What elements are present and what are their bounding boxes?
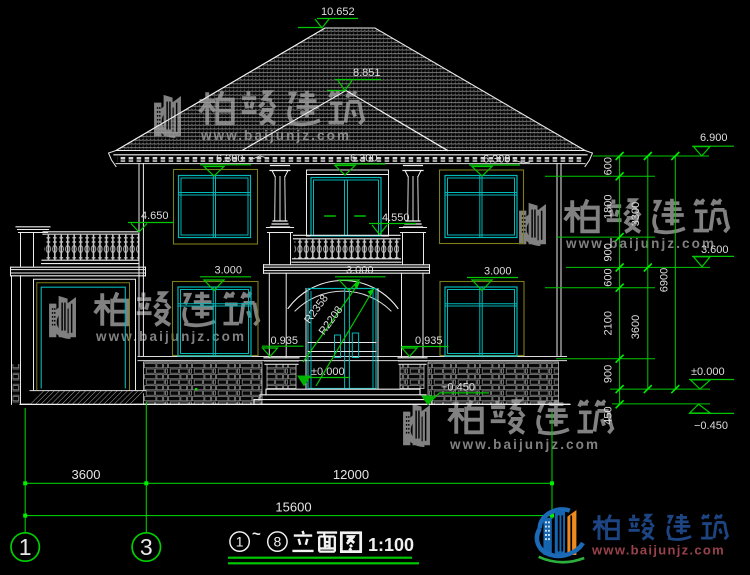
svg-text:0.935: 0.935: [271, 335, 299, 347]
svg-text:~: ~: [252, 526, 261, 543]
svg-text:1: 1: [19, 534, 32, 560]
svg-text:3600: 3600: [72, 467, 101, 482]
svg-text:900: 900: [603, 365, 615, 383]
svg-text:±0.000: ±0.000: [311, 366, 345, 378]
svg-text:450: 450: [603, 406, 615, 424]
svg-text:6.900: 6.900: [700, 132, 728, 144]
svg-text:±0.000: ±0.000: [691, 366, 725, 378]
svg-text:1:100: 1:100: [368, 535, 414, 555]
svg-text:3.000: 3.000: [484, 266, 512, 278]
svg-text:6.300: 6.300: [483, 154, 511, 166]
svg-text:600: 600: [603, 157, 615, 175]
svg-text:6900: 6900: [659, 268, 671, 292]
svg-text:3600: 3600: [630, 315, 642, 339]
svg-text:1800: 1800: [603, 194, 615, 218]
svg-text:3300: 3300: [630, 202, 642, 226]
svg-text:15600: 15600: [275, 499, 311, 514]
svg-text:−0.450: −0.450: [694, 420, 728, 432]
svg-text:www.baijunjz.com: www.baijunjz.com: [591, 543, 725, 558]
svg-text:4.550: 4.550: [382, 212, 410, 224]
svg-text:8: 8: [274, 534, 282, 550]
svg-text:3.000: 3.000: [215, 265, 243, 277]
svg-text:1: 1: [236, 534, 244, 550]
svg-text:2100: 2100: [603, 311, 615, 335]
svg-text:3.600: 3.600: [701, 244, 729, 256]
svg-text:900: 900: [603, 243, 615, 261]
svg-text:6.300: 6.300: [350, 153, 378, 165]
svg-text:3: 3: [140, 534, 153, 560]
svg-text:4.650: 4.650: [141, 210, 169, 222]
svg-text:−0.450: −0.450: [441, 382, 475, 394]
svg-text:10.652: 10.652: [321, 6, 355, 18]
svg-text:0.935: 0.935: [415, 335, 443, 347]
svg-text:600: 600: [603, 268, 615, 286]
svg-text:8.851: 8.851: [353, 67, 381, 79]
svg-text:6.300: 6.300: [216, 153, 244, 165]
svg-text:3.000: 3.000: [346, 265, 374, 277]
svg-text:12000: 12000: [333, 467, 369, 482]
